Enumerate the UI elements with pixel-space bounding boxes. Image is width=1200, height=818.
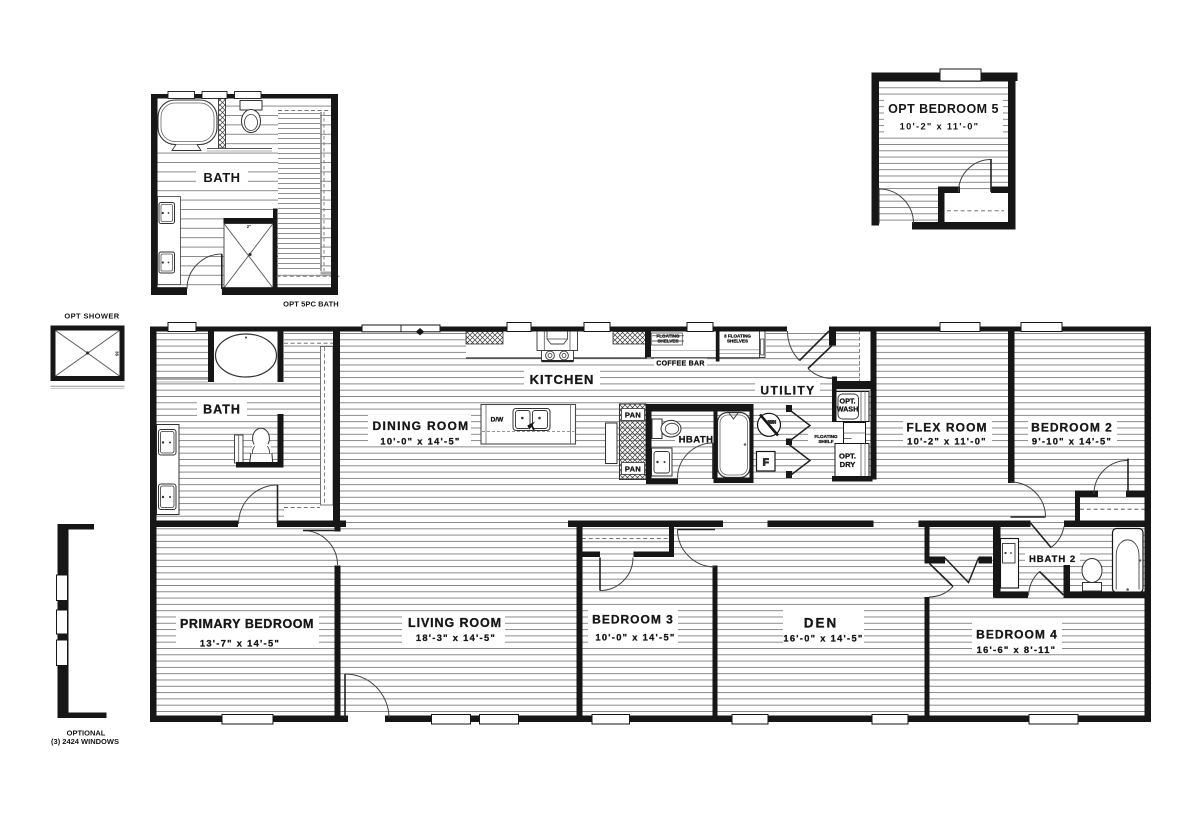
svg-text:F: F [763,458,769,469]
svg-text:9'-10" x 14'-5": 9'-10" x 14'-5" [1032,436,1112,446]
svg-text:(3) 2424 WINDOWS: (3) 2424 WINDOWS [51,737,119,746]
svg-text:LIVING ROOM: LIVING ROOM [408,616,502,630]
svg-text:FLEX ROOM: FLEX ROOM [906,421,987,435]
svg-text:10'-0" x 14'-5": 10'-0" x 14'-5" [380,437,460,447]
svg-text:PAN: PAN [625,465,641,474]
svg-text:13'-7" x 14'-5": 13'-7" x 14'-5" [200,639,280,649]
svg-text:DRY: DRY [840,460,856,469]
svg-text:10'-2" x 11'-0": 10'-2" x 11'-0" [907,436,987,446]
svg-text:2": 2" [247,224,252,229]
svg-text:10'-0" x 14'-5": 10'-0" x 14'-5" [595,633,675,643]
svg-text:BEDROOM 2: BEDROOM 2 [1031,421,1113,435]
svg-text:10'-2" x 11'-0": 10'-2" x 11'-0" [900,122,980,132]
svg-text:UTILITY: UTILITY [760,384,815,398]
svg-text:DINING ROOM: DINING ROOM [373,419,470,433]
svg-text:PRIMARY BEDROOM: PRIMARY BEDROOM [180,617,314,631]
svg-text:BEDROOM 4: BEDROOM 4 [976,628,1058,642]
svg-text:OPT BEDROOM 5: OPT BEDROOM 5 [888,102,999,116]
svg-text:BEDROOM 3: BEDROOM 3 [592,613,674,627]
svg-text:COFFEE BAR: COFFEE BAR [656,360,705,367]
svg-text:SHELF: SHELF [818,439,833,444]
svg-text:WASH: WASH [837,405,859,414]
svg-text:BATH: BATH [203,403,241,417]
svg-text:OPT SHOWER: OPT SHOWER [64,312,119,321]
svg-text:18'-3" x 14'-5": 18'-3" x 14'-5" [416,633,496,643]
svg-text:D/W: D/W [491,417,505,424]
svg-text:HBATH: HBATH [679,435,714,446]
svg-text:BATH: BATH [203,170,240,185]
svg-text:16'-6" x 8'-11": 16'-6" x 8'-11" [977,645,1057,655]
svg-text:DEN: DEN [804,616,839,631]
svg-text:PAN: PAN [625,411,641,420]
svg-text:36: 36 [115,351,120,357]
svg-text:16'-0" x 14'-5": 16'-0" x 14'-5" [783,634,863,644]
svg-text:WH: WH [768,420,777,426]
svg-text:SHELVES: SHELVES [727,339,748,344]
svg-text:OPT 5PC BATH: OPT 5PC BATH [283,300,339,309]
svg-text:KITCHEN: KITCHEN [530,372,595,387]
svg-text:HBATH 2: HBATH 2 [1029,554,1076,565]
